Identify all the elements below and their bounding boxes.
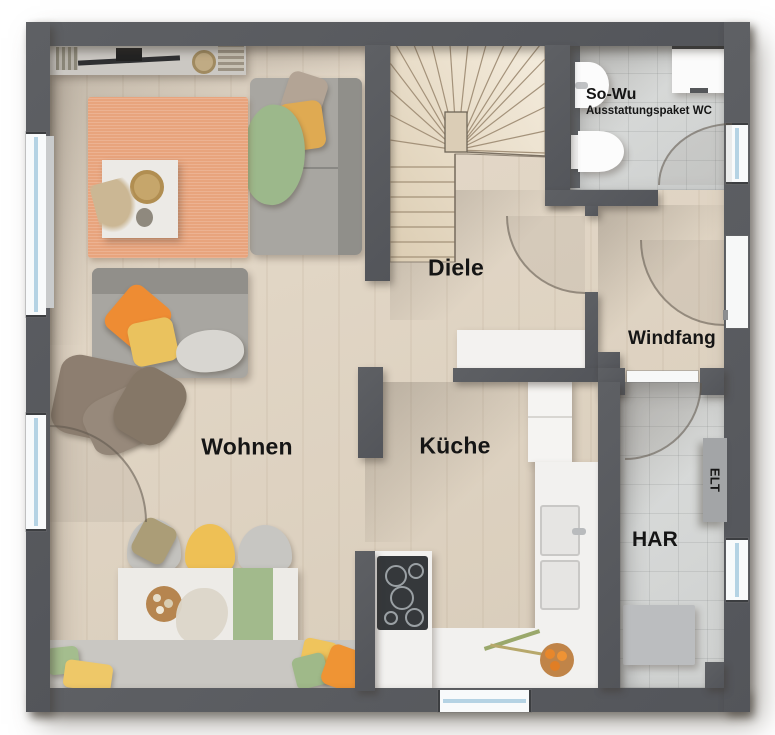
entry-door [726, 236, 748, 328]
bowl-dot [153, 594, 161, 602]
bowl-dot [156, 606, 164, 614]
elt-label: ELT [708, 468, 723, 492]
burner [390, 586, 414, 610]
wall-windfang-har-right [700, 368, 724, 395]
room-label-sowu-group: So-Wu Ausstattungspaket WC [586, 86, 712, 117]
window-kueche [438, 690, 531, 712]
wall-windfang-stub [598, 352, 620, 368]
burner [385, 565, 407, 587]
har-appliance-box [623, 605, 695, 665]
diele-sideboard [457, 330, 587, 368]
cooktop [377, 556, 428, 630]
sofa-backrest [338, 78, 362, 255]
wall-top [28, 22, 748, 46]
wall-stairs-sowu [545, 45, 570, 205]
wall-wohnen-kueche-lower [355, 551, 375, 691]
room-label-diele: Diele [428, 255, 484, 282]
burner [405, 608, 424, 627]
wall-stub-diele-door [585, 206, 598, 216]
room-label-sowu: So-Wu [586, 86, 712, 104]
window-har [726, 538, 748, 602]
books-stack-right [218, 45, 244, 71]
cabinet-gap-line [528, 416, 572, 418]
wall-kueche-har [598, 382, 620, 688]
wall-wohnen-kueche-upper [358, 367, 383, 458]
orange-fruit [550, 661, 560, 671]
wall-sowu-bottom [545, 190, 658, 206]
wall-left [26, 22, 50, 712]
room-label-windfang: Windfang [628, 328, 716, 350]
burner [408, 563, 424, 579]
har-door-leaf [627, 371, 698, 382]
faucet [572, 528, 586, 535]
orange-fruit [545, 649, 555, 659]
wall-diele-kueche [453, 368, 598, 382]
room-label-kueche: Küche [419, 433, 490, 460]
window-sill-board [46, 136, 54, 308]
fruit-bowl [540, 643, 574, 677]
wall-diele-windfang [585, 292, 598, 368]
room-sublabel-sowu: Ausstattungspaket WC [586, 105, 712, 117]
round-dish-decor [192, 50, 216, 74]
floor-plan: ELT Wohnen Diele Küche Windfang HAR So-W… [0, 0, 775, 735]
pillow-yellow-2 [126, 316, 180, 369]
terrace-door [26, 413, 46, 531]
burner [384, 611, 398, 625]
wall-wohnen-stairs [365, 45, 390, 281]
wall-bottom [28, 688, 748, 712]
bowl-dot [164, 599, 173, 608]
sink-basin-2 [540, 560, 580, 610]
daybed-backrest [92, 268, 248, 294]
room-label-wohnen: Wohnen [201, 434, 292, 461]
wall-har-corner-stub [705, 662, 724, 688]
tall-cabinet-fridge [528, 378, 572, 462]
books-stack-left [56, 47, 78, 70]
black-box-decor [116, 48, 142, 61]
orange-fruit [557, 651, 567, 661]
room-label-har: HAR [632, 528, 678, 552]
plant-vase [136, 208, 153, 227]
window-left [26, 132, 46, 317]
